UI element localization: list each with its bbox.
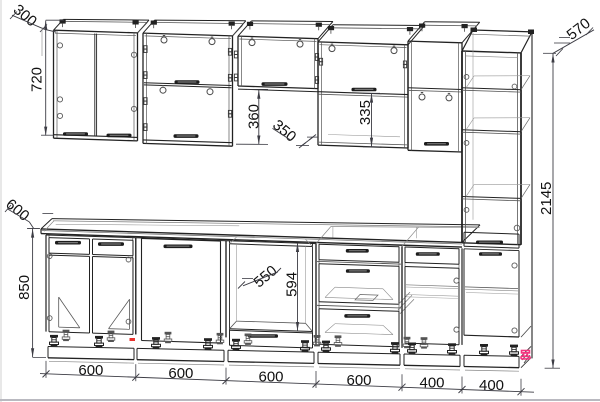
svg-text:850: 850 [16,275,33,300]
svg-text:600: 600 [258,369,283,386]
svg-text:600: 600 [346,372,371,389]
svg-text:594: 594 [284,272,301,297]
svg-text:720: 720 [28,67,45,92]
svg-text:360: 360 [245,104,262,129]
svg-text:600: 600 [168,365,193,382]
svg-text:2145: 2145 [538,182,555,215]
svg-text:400: 400 [479,377,504,394]
svg-text:600: 600 [78,362,103,379]
svg-text:400: 400 [419,375,444,392]
